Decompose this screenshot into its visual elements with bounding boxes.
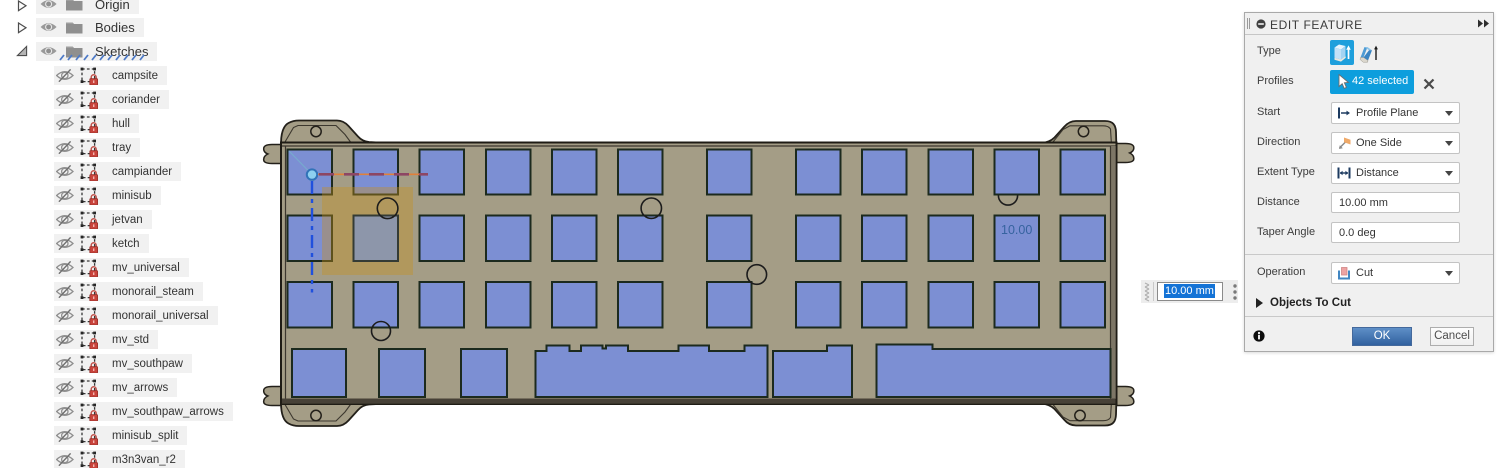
svg-text:10.00: 10.00 (1001, 223, 1032, 237)
